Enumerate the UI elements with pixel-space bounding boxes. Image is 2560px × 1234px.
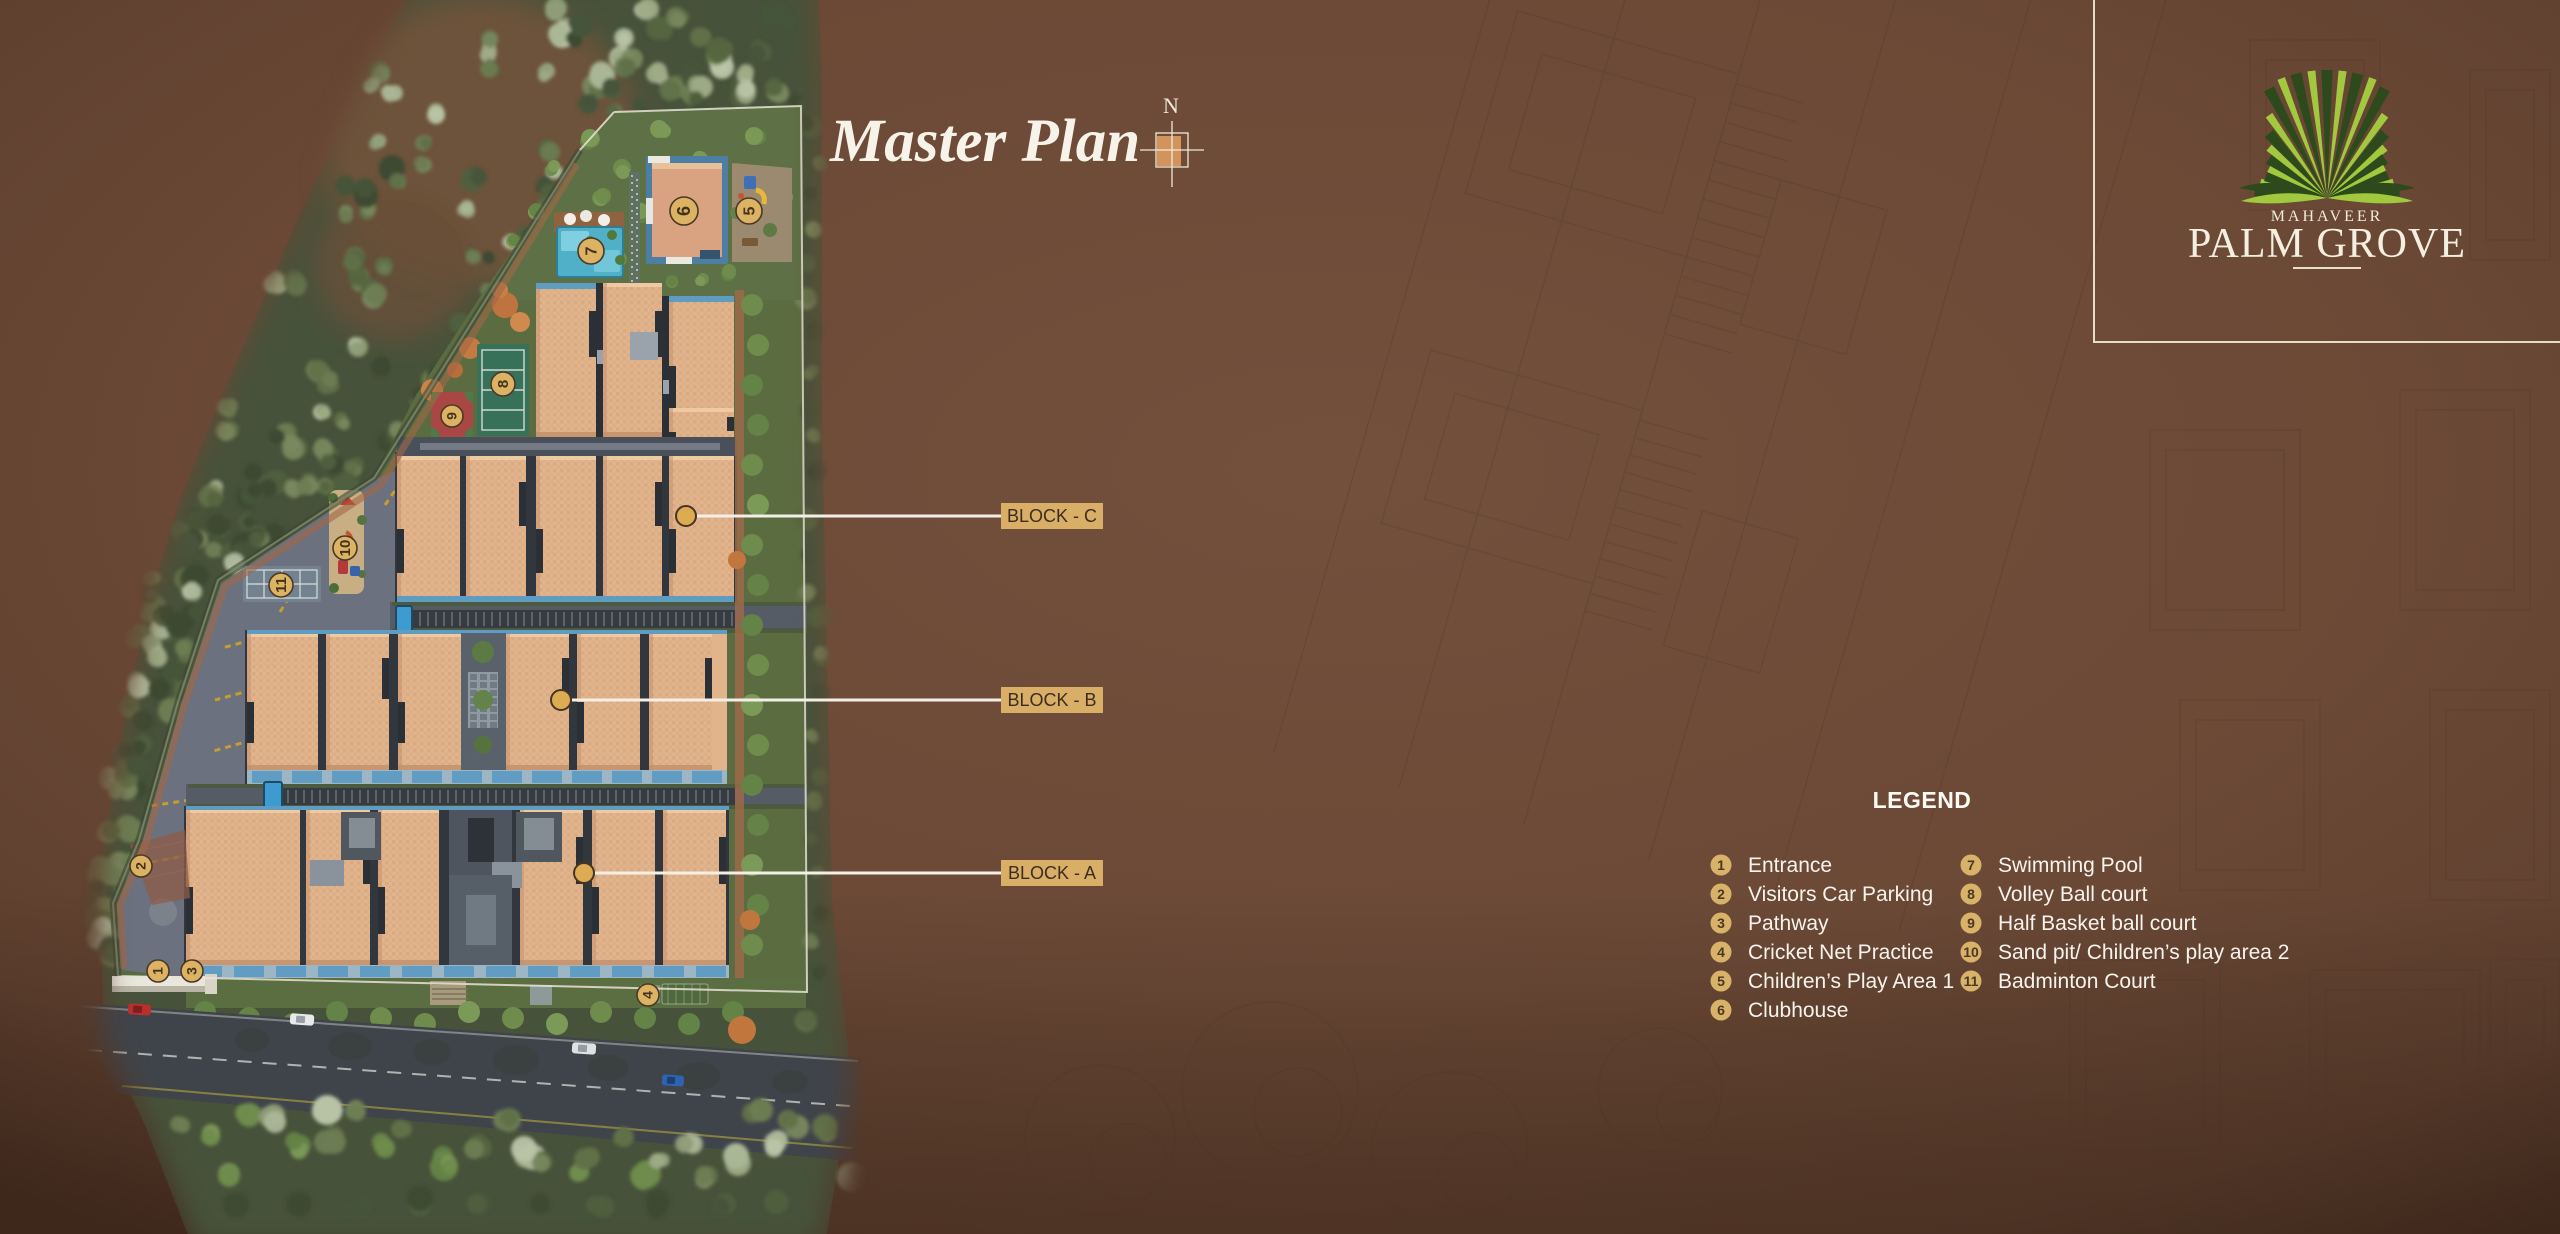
- svg-text:Sand pit/ Children’s play area: Sand pit/ Children’s play area 2: [1998, 941, 2289, 964]
- svg-text:6: 6: [1717, 1002, 1725, 1018]
- svg-text:N: N: [1163, 93, 1179, 118]
- svg-text:Half Basket ball court: Half Basket ball court: [1998, 912, 2197, 935]
- svg-text:Master Plan: Master Plan: [829, 108, 1140, 175]
- svg-text:7: 7: [1967, 857, 1975, 873]
- svg-text:Entrance: Entrance: [1748, 854, 1832, 877]
- svg-text:10: 10: [1963, 944, 1979, 960]
- svg-text:BLOCK - B: BLOCK - B: [1007, 690, 1096, 710]
- svg-text:9: 9: [1967, 915, 1975, 931]
- svg-text:Volley Ball court: Volley Ball court: [1998, 883, 2148, 906]
- svg-text:6: 6: [674, 206, 694, 216]
- svg-text:11: 11: [1964, 973, 1979, 989]
- svg-text:5: 5: [742, 206, 759, 215]
- svg-text:Clubhouse: Clubhouse: [1748, 999, 1848, 1022]
- svg-text:7: 7: [584, 246, 601, 255]
- svg-text:Cricket Net Practice: Cricket Net Practice: [1748, 941, 1934, 964]
- svg-text:Badminton Court: Badminton Court: [1998, 970, 2156, 993]
- svg-text:5: 5: [1717, 973, 1725, 989]
- svg-text:Swimming Pool: Swimming Pool: [1998, 854, 2143, 877]
- svg-text:4: 4: [640, 991, 656, 999]
- svg-text:4: 4: [1717, 944, 1725, 960]
- svg-text:Pathway: Pathway: [1748, 912, 1829, 935]
- svg-text:3: 3: [184, 967, 200, 975]
- svg-text:BLOCK - A: BLOCK - A: [1008, 863, 1096, 883]
- svg-text:Visitors Car Parking: Visitors Car Parking: [1748, 883, 1933, 906]
- svg-text:11: 11: [273, 577, 290, 593]
- svg-text:LEGEND: LEGEND: [1873, 787, 1972, 813]
- svg-text:8: 8: [1967, 886, 1975, 902]
- svg-text:2: 2: [133, 862, 149, 870]
- svg-text:2: 2: [1717, 886, 1725, 902]
- svg-text:BLOCK - C: BLOCK - C: [1007, 506, 1097, 526]
- svg-text:8: 8: [495, 380, 512, 388]
- svg-text:10: 10: [337, 540, 354, 557]
- svg-text:3: 3: [1717, 915, 1725, 931]
- svg-text:1: 1: [150, 967, 166, 975]
- svg-text:Children’s Play Area 1: Children’s Play Area 1: [1748, 970, 1954, 993]
- svg-text:PALM GROVE: PALM GROVE: [2188, 221, 2466, 267]
- svg-text:1: 1: [1717, 857, 1725, 873]
- svg-text:9: 9: [444, 412, 460, 420]
